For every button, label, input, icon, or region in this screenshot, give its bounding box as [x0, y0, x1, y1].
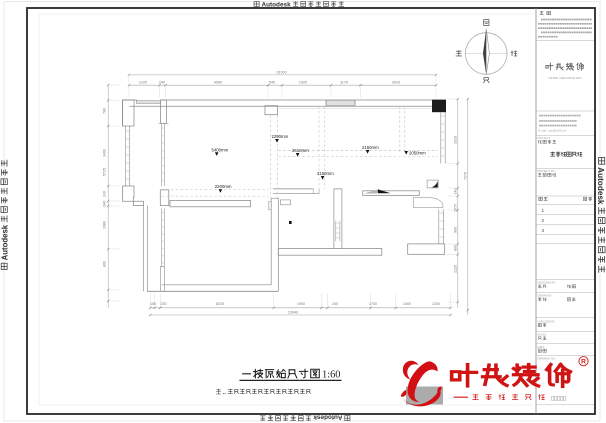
svg-text:1700: 1700	[369, 302, 377, 306]
svg-text:1200: 1200	[432, 302, 440, 306]
svg-text:PROJECT: PROJECT	[538, 136, 551, 140]
svg-text:1225: 1225	[453, 265, 457, 273]
svg-text:1900: 1900	[297, 302, 305, 306]
svg-text:2: 2	[542, 218, 545, 223]
svg-text:5400mm: 5400mm	[212, 147, 229, 152]
svg-text:540: 540	[269, 80, 275, 84]
svg-text:1070: 1070	[453, 204, 457, 212]
svg-text:800: 800	[103, 261, 107, 267]
svg-text:4060: 4060	[214, 80, 222, 84]
svg-text:240: 240	[159, 80, 165, 84]
svg-text:5725: 5725	[103, 168, 107, 176]
svg-text:1: 1	[542, 208, 545, 213]
svg-text:900: 900	[453, 227, 457, 233]
svg-text:640: 640	[103, 201, 107, 207]
svg-text:Autodesk: Autodesk	[262, 2, 292, 9]
svg-text:1:60: 1:60	[322, 370, 340, 381]
svg-text:1220: 1220	[139, 80, 147, 84]
svg-text:SCALE: SCALE	[538, 333, 547, 337]
svg-text:7270: 7270	[463, 172, 467, 180]
svg-text:DESIGNED BY: DESIGNED BY	[538, 280, 557, 284]
svg-text:2150mm: 2150mm	[317, 171, 334, 176]
svg-text:E-mail : yszs@163.com: E-mail : yszs@163.com	[539, 128, 568, 132]
svg-text:3010: 3010	[392, 80, 400, 84]
svg-text:2200mm: 2200mm	[215, 184, 232, 189]
svg-text:YESHI DECORATION: YESHI DECORATION	[548, 76, 582, 80]
svg-text:240: 240	[332, 302, 338, 306]
svg-text:780: 780	[103, 108, 107, 114]
svg-text:Autodesk: Autodesk	[0, 224, 9, 260]
svg-text:3: 3	[542, 228, 545, 233]
svg-text:800: 800	[453, 245, 457, 251]
svg-text:2290mm: 2290mm	[272, 134, 289, 139]
svg-text:2160mm: 2160mm	[362, 145, 379, 150]
svg-text:3310: 3310	[453, 136, 457, 144]
svg-text:DATE: DATE	[538, 345, 545, 349]
svg-text:1170: 1170	[340, 80, 348, 84]
svg-text:1000: 1000	[403, 302, 411, 306]
svg-text:2610mm: 2610mm	[292, 148, 309, 153]
svg-text:13040: 13040	[288, 310, 298, 314]
svg-text:DRAWING NO.: DRAWING NO.	[538, 357, 557, 361]
svg-text:2050mm: 2050mm	[409, 151, 426, 156]
svg-text:Autodesk: Autodesk	[596, 167, 605, 205]
svg-text:CHECKED BY: CHECKED BY	[538, 319, 556, 323]
svg-text:Autodesk: Autodesk	[313, 414, 343, 421]
svg-text:240: 240	[453, 189, 457, 195]
svg-text:3460: 3460	[103, 149, 107, 157]
svg-text:8230: 8230	[216, 302, 224, 306]
svg-text:13100: 13100	[276, 71, 287, 75]
svg-text:PROJECT NO.: PROJECT NO.	[538, 169, 556, 173]
svg-text:1980: 1980	[103, 221, 107, 229]
svg-text:240: 240	[103, 191, 107, 197]
svg-text:R: R	[581, 359, 586, 366]
svg-text:1920: 1920	[299, 80, 307, 84]
svg-text:230: 230	[161, 302, 167, 306]
svg-text:DRAWN BY: DRAWN BY	[538, 293, 553, 297]
svg-text:150: 150	[150, 302, 156, 306]
